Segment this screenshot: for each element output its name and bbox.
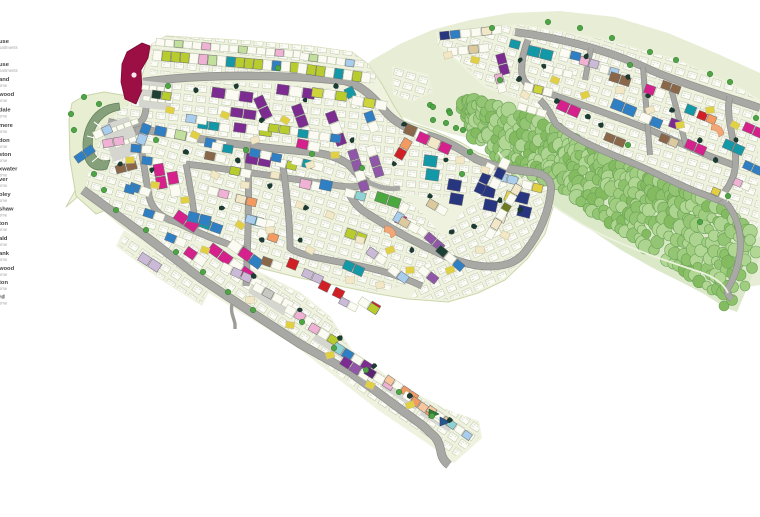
svg-text:ome: ome (0, 144, 8, 149)
svg-text:ome: ome (0, 98, 8, 103)
svg-text:ome: ome (0, 272, 8, 277)
svg-text:ome: ome (0, 158, 8, 163)
svg-text:ome: ome (0, 227, 8, 232)
svg-text:ome: ome (0, 257, 8, 262)
svg-text:ome: ome (0, 212, 8, 217)
svg-text:partments: partments (0, 45, 18, 50)
svg-text:ome: ome (0, 242, 8, 247)
svg-text:ome: ome (0, 129, 8, 134)
svg-text:ome: ome (0, 198, 8, 203)
svg-text:ome: ome (0, 300, 8, 305)
svg-text:partments: partments (0, 68, 18, 73)
svg-text:ome: ome (0, 113, 8, 118)
svg-text:ome: ome (0, 286, 8, 291)
svg-text:ome: ome (0, 83, 8, 88)
svg-text:ome: ome (0, 183, 8, 188)
